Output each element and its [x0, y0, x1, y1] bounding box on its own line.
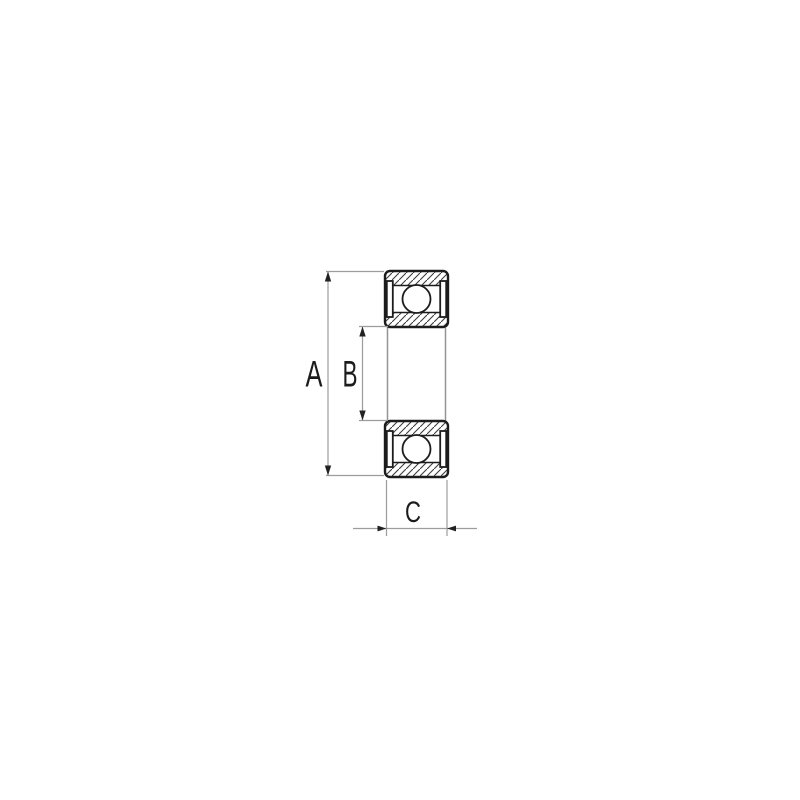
outer-ring-top-section	[385, 271, 448, 327]
dimension-b: B	[343, 327, 389, 421]
inner-ring-bore	[388, 328, 446, 421]
seal-groove-bottom-right	[440, 431, 446, 467]
outer-ring-bottom-section	[385, 421, 448, 477]
drawing-canvas: A B C	[0, 0, 800, 800]
seal-groove-top-left	[387, 281, 393, 317]
dimension-c-arrow-right-icon	[378, 526, 387, 532]
seal-groove-top-right	[440, 281, 446, 317]
ball-bottom	[403, 435, 431, 463]
dimension-a-arrow-up-icon	[325, 272, 331, 282]
dimension-a-arrow-down-icon	[325, 466, 331, 476]
dimension-c-label: C	[405, 496, 421, 529]
dimension-b-label: B	[343, 354, 358, 395]
dimension-c: C	[353, 480, 477, 536]
seal-groove-bottom-left	[387, 431, 393, 467]
dimension-a-label: A	[306, 354, 323, 395]
bearing-technical-drawing: A B C	[0, 0, 800, 800]
ball-top	[403, 285, 431, 313]
dimension-c-arrow-left-icon	[447, 526, 456, 532]
dimension-b-arrow-down-icon	[359, 411, 365, 421]
dimension-b-arrow-up-icon	[359, 327, 365, 337]
